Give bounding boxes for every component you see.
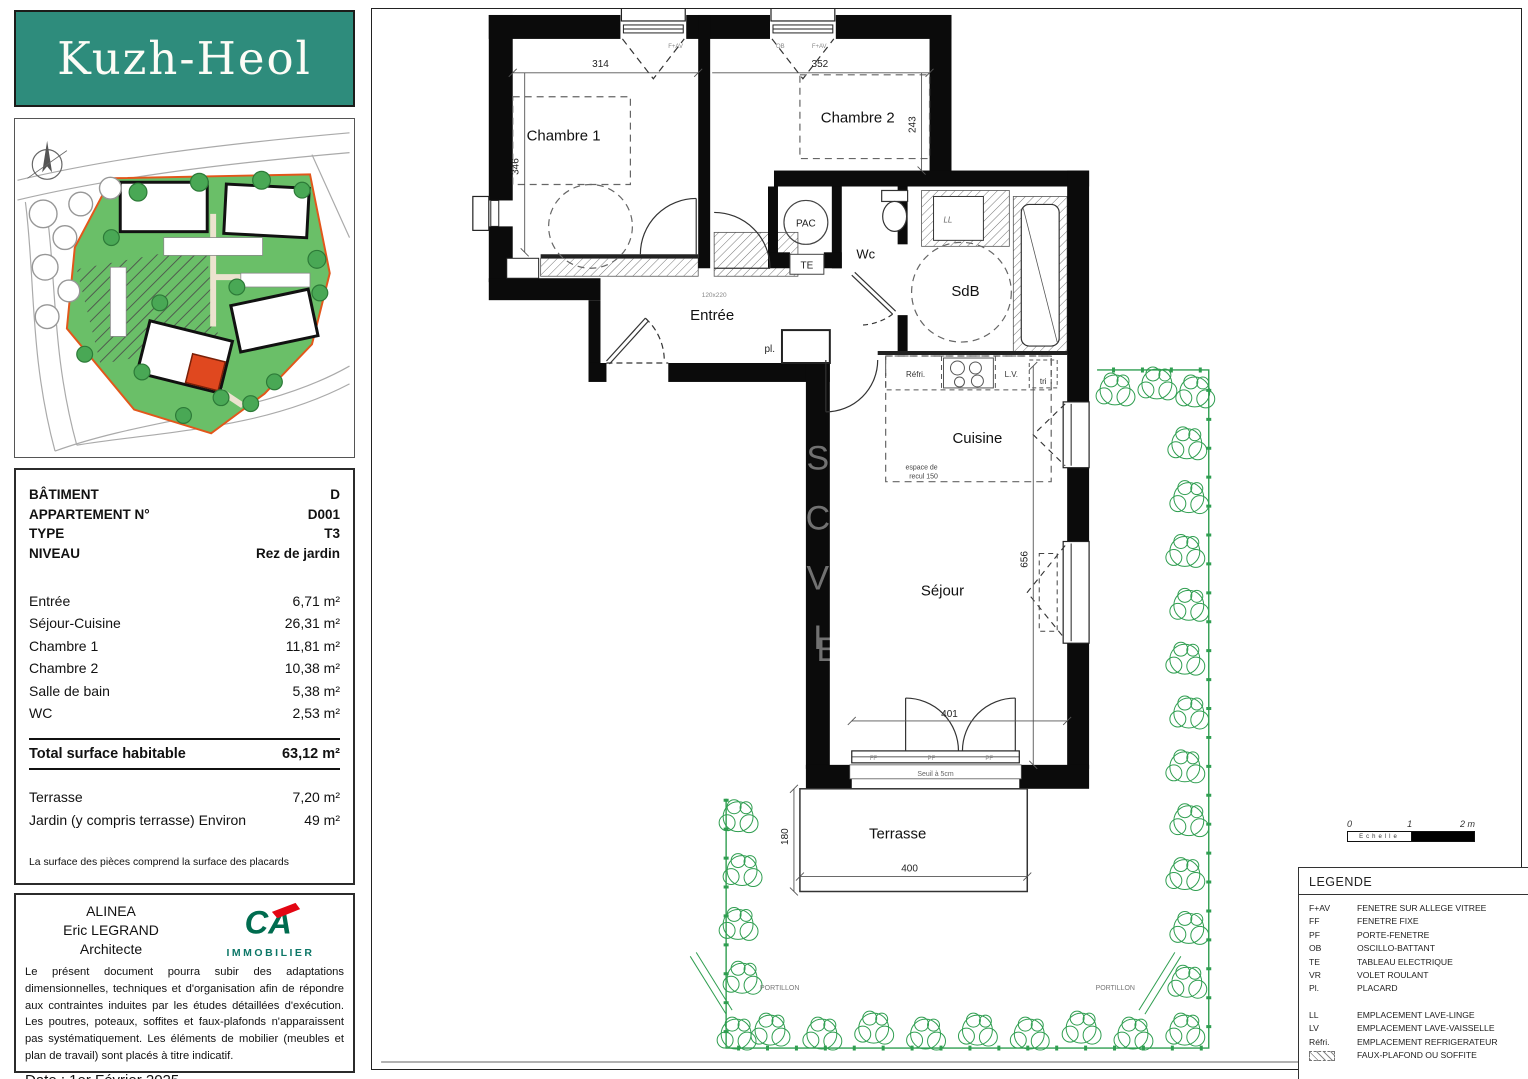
info-value: T3: [324, 524, 340, 544]
legend-label: FAUX-PLAFOND OU SOFFITE: [1357, 1049, 1528, 1065]
scale-bar: 0 1 2 m Echelle: [1347, 819, 1475, 842]
legend-row: OBOSCILLO-BATTANT: [1309, 942, 1528, 955]
architect-firm: ALINEA: [25, 902, 197, 921]
legend-row: LVEMPLACEMENT LAVE-VAISSELLE: [1309, 1022, 1528, 1035]
room-wc: Wc: [856, 246, 875, 261]
svg-text:E: E: [817, 631, 840, 669]
info-row-niveau: NIVEAURez de jardin: [29, 544, 340, 564]
window-chambre1: F+AV: [621, 9, 685, 79]
legend-label: EMPLACEMENT LAVE-VAISSELLE: [1357, 1022, 1528, 1035]
info-row-appartement: APPARTEMENT N°D001: [29, 505, 340, 525]
legend-abbr: Pl.: [1309, 982, 1357, 995]
legend-abbr: TE: [1309, 956, 1357, 969]
area-label: Chambre 2: [29, 657, 98, 679]
area-row-sdb: Salle de bain5,38 m²: [29, 680, 340, 702]
window-type-label: OB: [776, 44, 785, 50]
portillon-label-right: PORTILLON: [1096, 985, 1135, 992]
total-value: 63,12 m²: [282, 746, 340, 762]
legend-label: OSCILLO-BATTANT: [1357, 942, 1528, 955]
recul-label-2: recul 150: [909, 474, 938, 481]
ll-label: LL: [944, 215, 953, 224]
window-type-label: F+AV: [668, 44, 683, 50]
legend-row: Réfri.EMPLACEMENT REFRIGERATEUR: [1309, 1036, 1528, 1049]
legend-label: FENETRE SUR ALLEGE VITREE: [1357, 902, 1528, 915]
floor-plan-area: PORTILLON PORTILLON: [371, 8, 1522, 1070]
door-entrance: [606, 318, 668, 364]
bay-pf-label: PF: [928, 756, 936, 762]
surface-note: La surface des pièces comprend la surfac…: [29, 857, 340, 868]
scale-tick-1: 1: [1407, 819, 1412, 829]
svg-text:C: C: [806, 500, 830, 538]
legend-abbr: F+AV: [1309, 902, 1357, 915]
legend-row: LLEMPLACEMENT LAVE-LINGE: [1309, 1009, 1528, 1022]
lv-label: L.V.: [1005, 370, 1018, 379]
area-label: WC: [29, 702, 52, 724]
legend-abbr: PF: [1309, 929, 1357, 942]
legend-label: TABLEAU ELECTRIQUE: [1357, 956, 1528, 969]
area-value: 11,81 m²: [286, 635, 340, 657]
area-value: 10,38 m²: [285, 657, 340, 679]
info-row-batiment: BÂTIMENTD: [29, 485, 340, 505]
dim-352: 352: [812, 59, 829, 70]
ca-logo-subtitle: IMMOBILIER: [197, 947, 344, 959]
legend-abbr: LV: [1309, 1022, 1357, 1035]
dim-401: 401: [941, 709, 958, 720]
area-row-chambre1: Chambre 111,81 m²: [29, 635, 340, 657]
bay-pf-label2: PF: [985, 756, 993, 762]
ca-logo-icon: CA: [238, 901, 304, 941]
dim-656: 656: [1019, 551, 1030, 568]
pac-label: PAC: [796, 218, 816, 229]
room-chambre2: Chambre 2: [821, 110, 895, 127]
legend-abbr: Réfri.: [1309, 1036, 1357, 1049]
svg-text:S: S: [807, 440, 830, 478]
area-label: Entrée: [29, 590, 70, 612]
area-value: 5,38 m²: [293, 680, 340, 702]
legend-label: FENETRE FIXE: [1357, 915, 1528, 928]
architect-name: Eric LEGRAND: [25, 921, 197, 940]
project-logo: Kuzh-Heol: [14, 10, 355, 107]
door-size-label: 120x220: [702, 292, 727, 299]
bathtub: [1021, 204, 1059, 346]
outdoor-label: Jardin (y compris terrasse) Environ: [29, 809, 246, 831]
scale-tick-2: 2 m: [1460, 819, 1475, 829]
dim-314: 314: [592, 59, 609, 70]
plan-sheet: Kuzh-Heol: [0, 0, 1528, 1079]
info-value: Rez de jardin: [256, 544, 340, 564]
tri-label: tri: [1040, 377, 1047, 386]
site-plan-svg: [15, 119, 352, 455]
area-value: 2,53 m²: [293, 702, 340, 724]
legal-disclaimer: Le présent document pourra subir des ada…: [25, 964, 344, 1065]
area-label: Salle de bain: [29, 680, 110, 702]
info-label: APPARTEMENT N°: [29, 505, 150, 525]
legend-abbr: VR: [1309, 969, 1357, 982]
refri-label: Réfri.: [906, 370, 925, 379]
outdoor-row-jardin: Jardin (y compris terrasse) Environ49 m²: [29, 809, 340, 831]
window-type-label: F+AV: [812, 44, 827, 50]
legend-label: PLACARD: [1357, 982, 1528, 995]
door-wc: [852, 272, 896, 325]
legend-row: F+AVFENETRE SUR ALLEGE VITREE: [1309, 902, 1528, 915]
gate-right: [1139, 952, 1181, 1014]
legend-row: Pl.PLACARD: [1309, 982, 1528, 995]
area-row-wc: WC2,53 m²: [29, 702, 340, 724]
area-label: Séjour-Cuisine: [29, 612, 121, 634]
legend-row: FAUX-PLAFOND OU SOFFITE: [1309, 1049, 1528, 1065]
dim-346: 346: [511, 158, 522, 175]
scale-tick-0: 0: [1347, 819, 1352, 829]
legend-row: FFFENETRE FIXE: [1309, 915, 1528, 928]
info-label: TYPE: [29, 524, 64, 544]
outdoor-label: Terrasse: [29, 786, 83, 808]
architect-names: ALINEA Eric LEGRAND Architecte: [25, 902, 197, 959]
door-sejour: [826, 360, 878, 412]
info-value: D001: [308, 505, 340, 525]
toilet: [882, 190, 908, 231]
total-label: Total surface habitable: [29, 746, 186, 762]
outdoor-row-terrasse: Terrasse7,20 m²: [29, 786, 340, 808]
outdoor-value: 49 m²: [304, 809, 340, 831]
room-sejour: Séjour: [921, 582, 964, 599]
room-terrasse: Terrasse: [869, 826, 926, 843]
info-label: NIVEAU: [29, 544, 80, 564]
area-label: Chambre 1: [29, 635, 98, 657]
legend-row: PFPORTE-FENETRE: [1309, 929, 1528, 942]
dim-243: 243: [908, 116, 919, 133]
plan-date: Date : 1er Février 2025: [25, 1072, 344, 1079]
room-cuisine: Cuisine: [952, 430, 1002, 447]
total-surface-row: Total surface habitable63,12 m²: [29, 738, 340, 770]
area-value: 6,71 m²: [293, 590, 340, 612]
dim-400: 400: [901, 864, 918, 875]
architect-block: ALINEA Eric LEGRAND Architecte CA IMMOBI…: [14, 893, 355, 1073]
legend-label: VOLET ROULANT: [1357, 969, 1528, 982]
info-row-type: TYPET3: [29, 524, 340, 544]
bay-doors: [850, 698, 1022, 779]
legend-label: EMPLACEMENT REFRIGERATEUR: [1357, 1036, 1528, 1049]
bay-ff-label: FF: [870, 756, 878, 762]
room-entree: Entrée: [690, 307, 734, 324]
area-row-entree: Entrée6,71 m²: [29, 590, 340, 612]
legend-box: LEGENDE F+AVFENETRE SUR ALLEGE VITREE FF…: [1298, 867, 1528, 1079]
ca-immobilier-logo: CA IMMOBILIER: [197, 901, 344, 959]
volet-roulant: [1039, 553, 1057, 631]
room-chambre1: Chambre 1: [527, 128, 601, 145]
niche: [507, 258, 539, 278]
legend-abbr: FF: [1309, 915, 1357, 928]
outdoor-value: 7,20 m²: [293, 786, 340, 808]
door-chambre1: [640, 198, 696, 254]
hatch-swatch-icon: [1309, 1049, 1357, 1065]
room-sdb: SdB: [951, 283, 979, 300]
dim-180: 180: [780, 828, 791, 845]
placard-label: pl.: [764, 344, 775, 355]
legend-abbr: LL: [1309, 1009, 1357, 1022]
scale-bar-black: [1412, 832, 1474, 841]
seuil-label: Seuil à 5cm: [917, 771, 954, 778]
legend-label: PORTE-FENETRE: [1357, 929, 1528, 942]
legend-row: VRVOLET ROULANT: [1309, 969, 1528, 982]
site-plan-map: [14, 118, 355, 458]
area-row-sejour-cuisine: Séjour-Cuisine26,31 m²: [29, 612, 340, 634]
legend-row: TETABLEAU ELECTRIQUE: [1309, 956, 1528, 969]
window-chambre1-left: [473, 196, 499, 230]
window-sejour: [1027, 541, 1089, 643]
apartment-info-table: BÂTIMENTD APPARTEMENT N°D001 TYPET3 NIVE…: [14, 468, 355, 885]
hedge-bushes: [717, 367, 1215, 1050]
legend-title: LEGENDE: [1309, 875, 1528, 889]
legend-abbr: OB: [1309, 942, 1357, 955]
scale-bar-label: Echelle: [1348, 832, 1412, 841]
lave-linge: [934, 196, 984, 240]
svg-text:V: V: [807, 559, 830, 597]
area-row-chambre2: Chambre 210,38 m²: [29, 657, 340, 679]
project-logo-text: Kuzh-Heol: [57, 32, 312, 85]
legend-label: EMPLACEMENT LAVE-LINGE: [1357, 1009, 1528, 1022]
placard-box: [782, 330, 830, 363]
window-cuisine: [1033, 402, 1089, 468]
recul-label-1: espace de: [905, 465, 937, 472]
info-label: BÂTIMENT: [29, 485, 99, 505]
info-value: D: [330, 485, 340, 505]
te-label: TE: [801, 260, 814, 271]
portillon-label-left: PORTILLON: [760, 985, 799, 992]
architect-title: Architecte: [25, 940, 197, 959]
area-value: 26,31 m²: [285, 612, 340, 634]
